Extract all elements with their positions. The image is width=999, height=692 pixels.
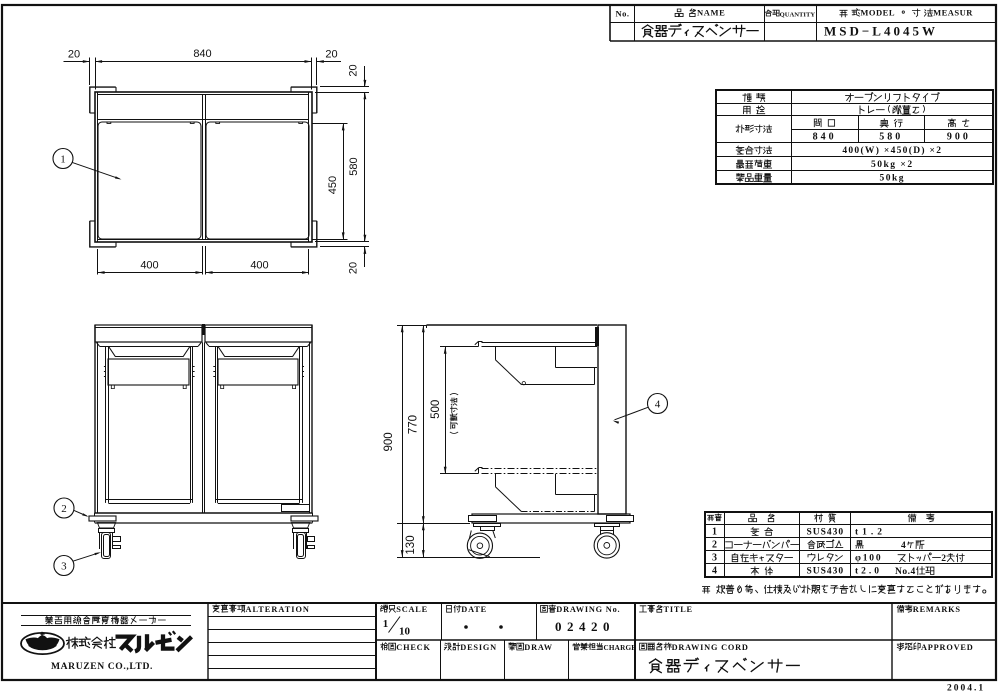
svg-text:900: 900 <box>947 132 971 143</box>
svg-text:DESIGN: DESIGN <box>460 643 497 652</box>
svg-text:SUS430: SUS430 <box>806 528 844 538</box>
svg-text:MARUZEN CO.,LTD.: MARUZEN CO.,LTD. <box>51 661 153 672</box>
svg-text:4: 4 <box>655 399 661 411</box>
svg-text:ALTERATION: ALTERATION <box>246 605 310 614</box>
svg-text:2: 2 <box>712 540 717 551</box>
svg-text:4: 4 <box>901 541 906 551</box>
svg-text:20: 20 <box>348 262 360 274</box>
svg-text:3: 3 <box>61 561 67 573</box>
svg-text:400: 400 <box>250 260 268 272</box>
svg-text:MEASUR: MEASUR <box>933 8 973 18</box>
svg-text:900: 900 <box>383 432 395 451</box>
svg-text:1: 1 <box>60 154 66 166</box>
svg-text:20: 20 <box>68 49 80 61</box>
svg-text:CHECK: CHECK <box>396 643 430 652</box>
svg-text:2004.1: 2004.1 <box>947 684 985 692</box>
svg-text:SUS430: SUS430 <box>806 567 844 577</box>
svg-text:NAME: NAME <box>697 8 725 18</box>
svg-text:1: 1 <box>383 618 389 630</box>
svg-text:t2.0: t2.0 <box>855 566 882 576</box>
svg-text:2: 2 <box>941 554 946 564</box>
svg-text:t1.2: t1.2 <box>855 528 886 538</box>
svg-text:2: 2 <box>61 503 67 515</box>
svg-text:580: 580 <box>879 132 903 143</box>
svg-text:APPROVED: APPROVED <box>921 643 974 652</box>
svg-text:500: 500 <box>430 400 442 419</box>
svg-text:3: 3 <box>712 553 717 564</box>
svg-text:SCALE: SCALE <box>396 605 428 614</box>
svg-text:840: 840 <box>813 132 837 143</box>
svg-text:02420: 02420 <box>555 619 615 634</box>
svg-text:450: 450 <box>327 176 339 194</box>
svg-text:20: 20 <box>348 64 360 76</box>
svg-text:770: 770 <box>407 415 419 434</box>
svg-text:10: 10 <box>399 626 411 638</box>
svg-text:130: 130 <box>405 535 417 554</box>
svg-text:20: 20 <box>325 49 337 61</box>
svg-text:1: 1 <box>712 527 717 538</box>
svg-text:MODEL: MODEL <box>860 8 895 18</box>
svg-text:400(W) ×450(D) ×2: 400(W) ×450(D) ×2 <box>842 145 942 156</box>
svg-text:50kg: 50kg <box>880 173 906 183</box>
svg-text:50kg ×2: 50kg ×2 <box>871 160 914 170</box>
svg-text:No.4: No.4 <box>895 567 916 577</box>
svg-text:QUANTITY: QUANTITY <box>780 12 816 19</box>
svg-text:840: 840 <box>193 48 211 60</box>
svg-text:REMARKS: REMARKS <box>913 605 961 614</box>
svg-text:4: 4 <box>712 566 717 577</box>
svg-text:DRAW: DRAW <box>524 643 553 652</box>
svg-text:DRAWING CORD: DRAWING CORD <box>672 643 749 652</box>
svg-text:MARUZEN: MARUZEN <box>35 649 50 653</box>
svg-text:No.: No. <box>615 9 629 19</box>
svg-text:580: 580 <box>348 157 360 175</box>
svg-text:DRAWING No.: DRAWING No. <box>556 605 620 614</box>
svg-text:CHARGE: CHARGE <box>604 644 637 652</box>
svg-text:MSD−L4045W: MSD−L4045W <box>824 24 938 39</box>
svg-text:φ100: φ100 <box>855 553 882 563</box>
svg-text:TITLE: TITLE <box>664 605 693 614</box>
svg-text:400: 400 <box>140 260 158 272</box>
svg-text:DATE: DATE <box>461 605 487 614</box>
